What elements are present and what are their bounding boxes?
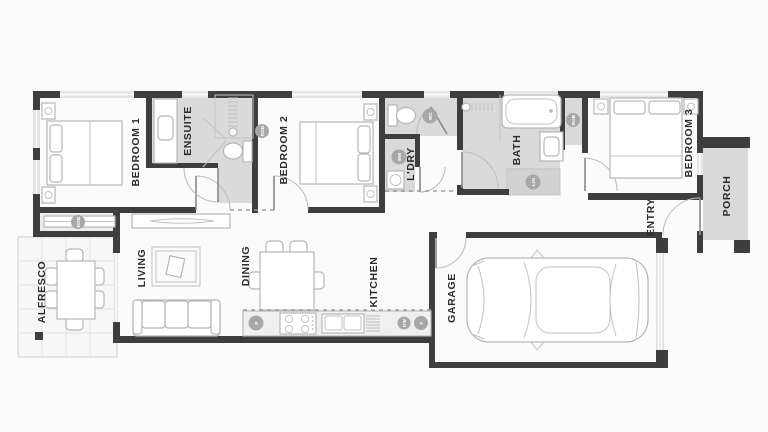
- dishwasher-marker-label: DW: [402, 319, 407, 328]
- wc-marker: WC: [423, 109, 438, 124]
- chair-icon: [66, 249, 83, 262]
- ensuite-door: [184, 168, 218, 202]
- linen-marker: LIN: [526, 175, 541, 190]
- front-entry-door: [663, 198, 700, 235]
- bathtub-icon: [502, 95, 561, 128]
- vanity-icon: [540, 132, 563, 161]
- bedroom1-window: [60, 91, 134, 98]
- bedroom2-window: [292, 91, 362, 98]
- room-label-bedroom2: BEDROOM 2: [278, 116, 290, 185]
- room-label-alfresco: ALFRESCO: [36, 261, 48, 324]
- bedroom1-side-window-1: [33, 110, 40, 148]
- outdoor-table-icon: [57, 261, 95, 319]
- wc-marker-label: WC: [428, 111, 433, 120]
- robe-marker-bedroom3: ROB: [566, 113, 580, 127]
- bedroom3-window: [600, 91, 668, 98]
- robe-marker-bedroom2: ROB: [255, 124, 269, 138]
- garage-panel-door: [656, 253, 664, 350]
- alfresco-post: [35, 332, 43, 340]
- cooktop-icon: [280, 313, 316, 334]
- room-label-bath: BATH: [511, 135, 523, 166]
- dining-table-icon: [260, 252, 314, 310]
- bedside-table-icon: [364, 186, 377, 202]
- room-label-ldry: L'DRY: [405, 147, 417, 181]
- bedside-table-icon: [364, 104, 377, 120]
- pantry-marker-label: P: [254, 321, 259, 324]
- room-label-bedroom3: BEDROOM 3: [683, 109, 695, 178]
- car-icon: [467, 250, 648, 350]
- laundry-door: [420, 167, 445, 192]
- robe-marker-label: ROB: [260, 125, 265, 136]
- robe-marker-label: ROB: [76, 216, 81, 227]
- tv-unit-icon: [132, 214, 230, 228]
- room-label-garage: GARAGE: [446, 273, 458, 323]
- fridge-marker: F: [414, 316, 428, 330]
- room-label-entry: ENTRY: [645, 198, 657, 236]
- fridge-marker-label: F: [419, 321, 424, 324]
- alfresco-sliding-door: [114, 253, 118, 322]
- bedside-table-icon: [594, 99, 608, 114]
- sofa-icon: [133, 300, 220, 336]
- bedroom1-furniture: [42, 103, 122, 203]
- dishwasher-marker: DW: [398, 317, 411, 330]
- room-label-living: LIVING: [136, 249, 148, 288]
- floor-plan-page: ROB ROB WC WM LIN ROB P DW F BEDROOM 1 E…: [0, 0, 768, 432]
- rug-coffee-table-icon: [152, 247, 200, 286]
- ensuite-window: [182, 91, 208, 98]
- room-label-ensuite: ENSUITE: [182, 106, 194, 156]
- room-label-bedroom1: BEDROOM 1: [130, 118, 142, 187]
- bedside-table-icon: [42, 103, 55, 119]
- bedroom2-furniture: [300, 104, 377, 202]
- linen-marker-label: LIN: [531, 178, 536, 186]
- wc-window: [424, 91, 450, 98]
- room-label-dining: DINING: [240, 246, 252, 286]
- wm-marker-label: WM: [397, 153, 402, 162]
- bedside-table-icon: [42, 187, 55, 203]
- floor-plan-canvas: ROB ROB WC WM LIN ROB P DW F BEDROOM 1 E…: [0, 0, 768, 432]
- pantry-marker: P: [249, 316, 264, 331]
- laundry-fixtures: [387, 171, 404, 189]
- bedroom1-side-window-2: [33, 160, 40, 194]
- bedroom3-porch-window: [697, 153, 703, 175]
- garage-car: [467, 250, 648, 350]
- room-label-porch: PORCH: [721, 176, 733, 217]
- robe-marker-bedroom1: ROB: [71, 215, 85, 229]
- room-label-kitchen: KITCHEN: [368, 257, 380, 308]
- garage-internal-door: [436, 238, 466, 268]
- robe-marker-label: ROB: [571, 114, 576, 125]
